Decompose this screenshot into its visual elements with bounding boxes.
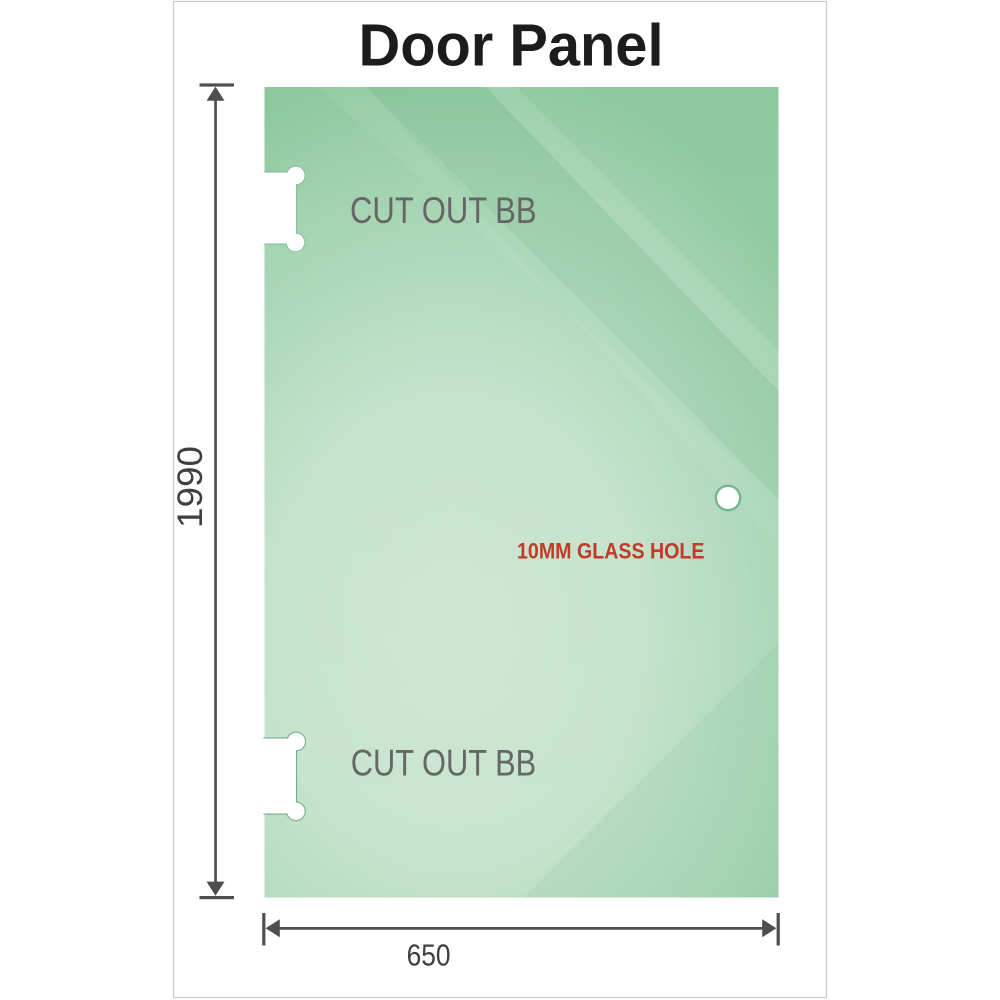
- svg-text:CUT OUT BB: CUT OUT BB: [351, 741, 537, 783]
- svg-text:Door Panel: Door Panel: [359, 13, 664, 79]
- svg-text:650: 650: [407, 938, 451, 973]
- svg-text:10MM GLASS HOLE: 10MM GLASS HOLE: [517, 539, 705, 564]
- svg-text:1990: 1990: [170, 446, 210, 528]
- svg-text:CUT OUT BB: CUT OUT BB: [350, 189, 537, 231]
